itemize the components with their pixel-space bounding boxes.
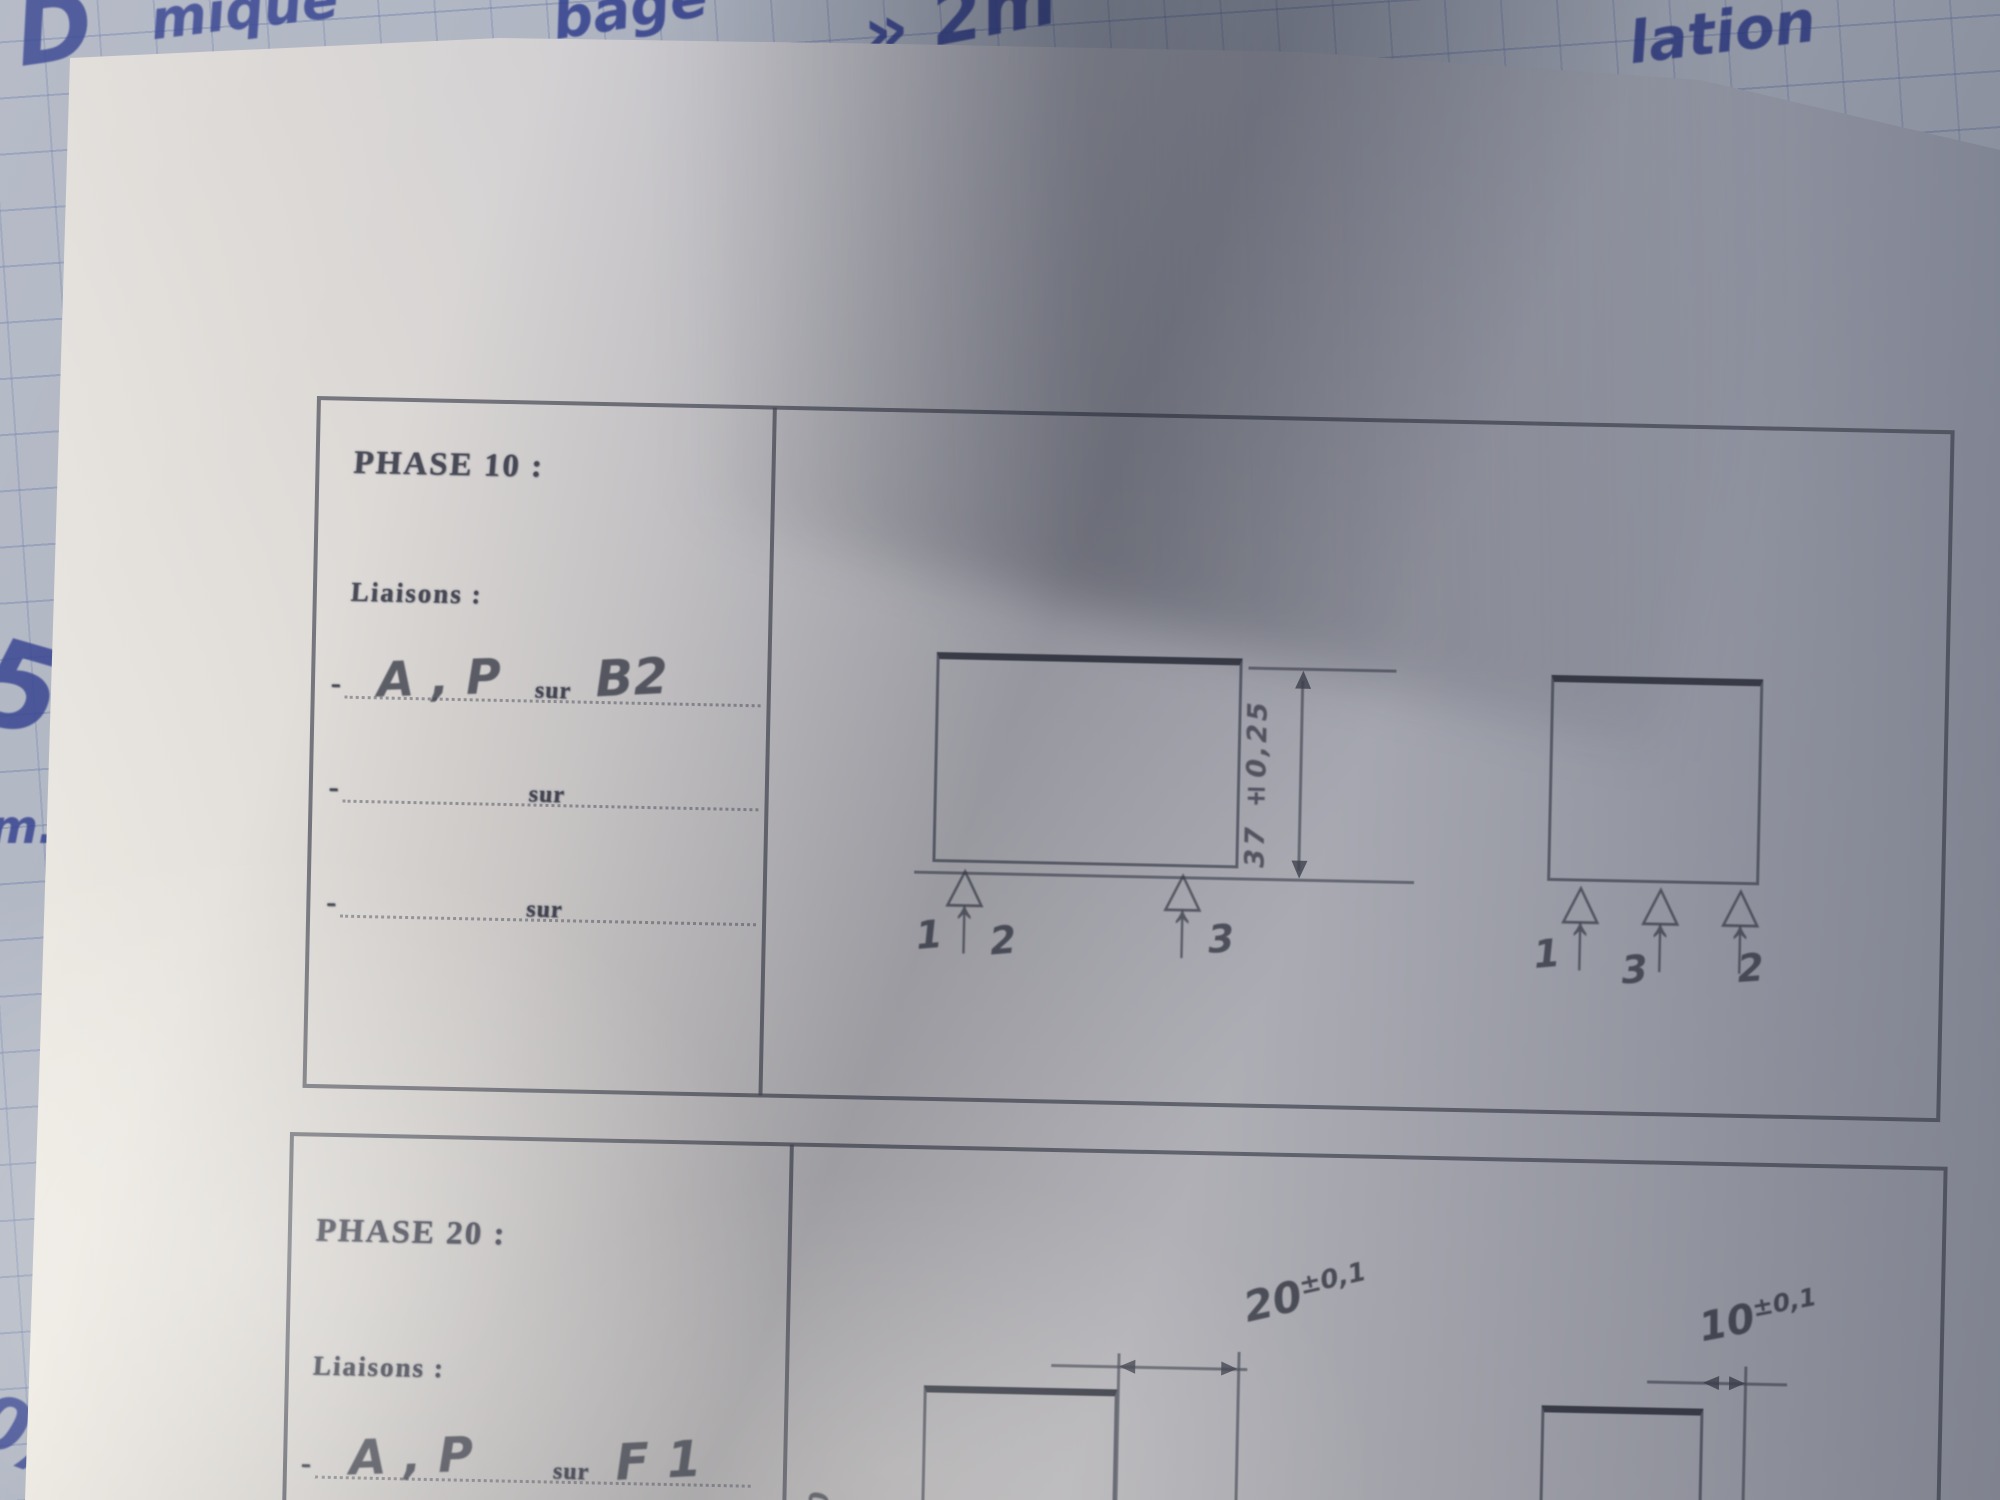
sur-label: sur [534, 678, 572, 706]
part-front-view [918, 1385, 1118, 1500]
phase20-cell-divider [779, 1144, 794, 1500]
worksheet-sheet: PHASE 10 : Liaisons : - A , P sur B2 - s… [0, 0, 2000, 1500]
dimension-arrowhead [1221, 1362, 1237, 1376]
phase20-title: PHASE 20 : [315, 1213, 508, 1254]
width-dimension-label: 20±0,1 [1239, 1256, 1373, 1332]
phase20-section: PHASE 20 : Liaisons : - A , P sur F 1 37… [279, 1132, 1948, 1500]
part-front-view [932, 652, 1242, 868]
phase10-liaison-row: - A , P sur B2 [331, 634, 762, 715]
dimension-value: 10 [1695, 1295, 1758, 1351]
phase20-liaison-row: - A , P sur F 1 [301, 1414, 752, 1495]
phase10-cell-divider [758, 408, 776, 1096]
dimension-arrowhead [1295, 671, 1311, 689]
dimension-line [1051, 1364, 1247, 1371]
phase20-liaisons-label: Liaisons : [312, 1351, 446, 1385]
sur-label: sur [552, 1459, 590, 1487]
phase10-title: PHASE 10 : [352, 445, 545, 486]
phase10-section: PHASE 10 : Liaisons : - A , P sur B2 - s… [303, 396, 1955, 1122]
handwritten-liaison-right: F 1 [614, 1430, 703, 1492]
handwritten-liaison-left: A , P [348, 1427, 474, 1487]
dimension-tolerance: ±0,1 [1296, 1257, 1369, 1301]
locating-arrow-icon: △ ↑ [1628, 880, 1693, 951]
photo-of-worksheet: D mique bage » 2m lation 5 m. 0) PHASE 1… [0, 0, 2000, 1500]
locating-number: 3 [1620, 947, 1649, 993]
dimension-arrowhead [1291, 861, 1307, 879]
sur-label: sur [525, 897, 563, 925]
vertical-dimension-text: 37 ±0,25 [1239, 687, 1274, 868]
vertical-dimension-text: 37 ±0,10 [801, 1327, 839, 1500]
locating-number: 2 [1736, 945, 1765, 991]
step-dimension-label: 10±0,1 [1695, 1282, 1822, 1351]
locating-number: 1 [1532, 931, 1562, 977]
locating-number: 1 [914, 912, 944, 958]
row-dash: - [330, 666, 344, 700]
sur-label: sur [528, 782, 566, 810]
part-side-view [1547, 675, 1763, 885]
locating-arrow-icon: △ ↑ [1708, 881, 1773, 952]
handwritten-liaison-left: A , P [376, 649, 502, 709]
dimension-arrowhead [1119, 1359, 1135, 1373]
dimension-arrowhead [1729, 1376, 1745, 1390]
extension-line [1248, 667, 1396, 673]
dimension-tolerance: ±0,1 [1750, 1282, 1819, 1323]
locating-number: 3 [1206, 916, 1235, 962]
locating-arrow-icon: △ ↑ [1150, 866, 1215, 937]
row-dash: - [325, 885, 339, 919]
phase10-liaison-row: - sur [328, 760, 759, 819]
row-dash: - [300, 1446, 314, 1480]
dimension-arrowhead [1703, 1376, 1719, 1390]
vertical-dimension-line [1297, 681, 1304, 871]
locating-number: 2 [988, 917, 1018, 963]
row-dash: - [328, 770, 342, 804]
part-side-view [1535, 1405, 1703, 1500]
arrow-glyph: ↑ [1150, 906, 1215, 952]
phase10-liaisons-label: Liaisons : [350, 577, 484, 611]
phase10-liaison-row: - sur [326, 875, 757, 934]
handwritten-liaison-right: B2 [594, 647, 670, 708]
